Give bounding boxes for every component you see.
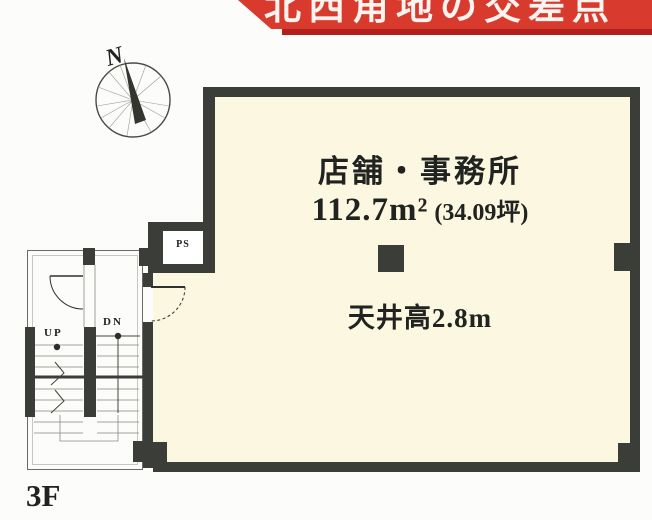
room-ceiling-height: 天井高2.8m [310,296,530,335]
floor-plan-page: 北西角地の交差点 N [0,0,652,520]
room-area: 112.7m²(34.09坪) [260,192,580,229]
pipe-shaft-label: PS [163,239,203,250]
stair-down-dot [115,333,121,339]
room-area-tsubo: (34.09坪) [434,200,528,226]
stair-well-void [60,415,118,441]
room-area-sqm: 112.7m² [312,192,429,228]
stair-up-label: UP [44,327,63,339]
stair-up-dot [54,344,60,350]
headline-banner: 北西角地の交差点 [238,0,652,29]
compass-icon [88,48,180,148]
stair-down-label: DN [103,316,123,328]
room-name: 店舗・事務所 [290,146,550,191]
compass-needle [124,58,146,124]
headline-banner-shadow [282,28,652,35]
stairwell-door [50,276,83,309]
headline-banner-text: 北西角地の交差点 [264,0,616,29]
floor-label: 3F [26,478,60,514]
